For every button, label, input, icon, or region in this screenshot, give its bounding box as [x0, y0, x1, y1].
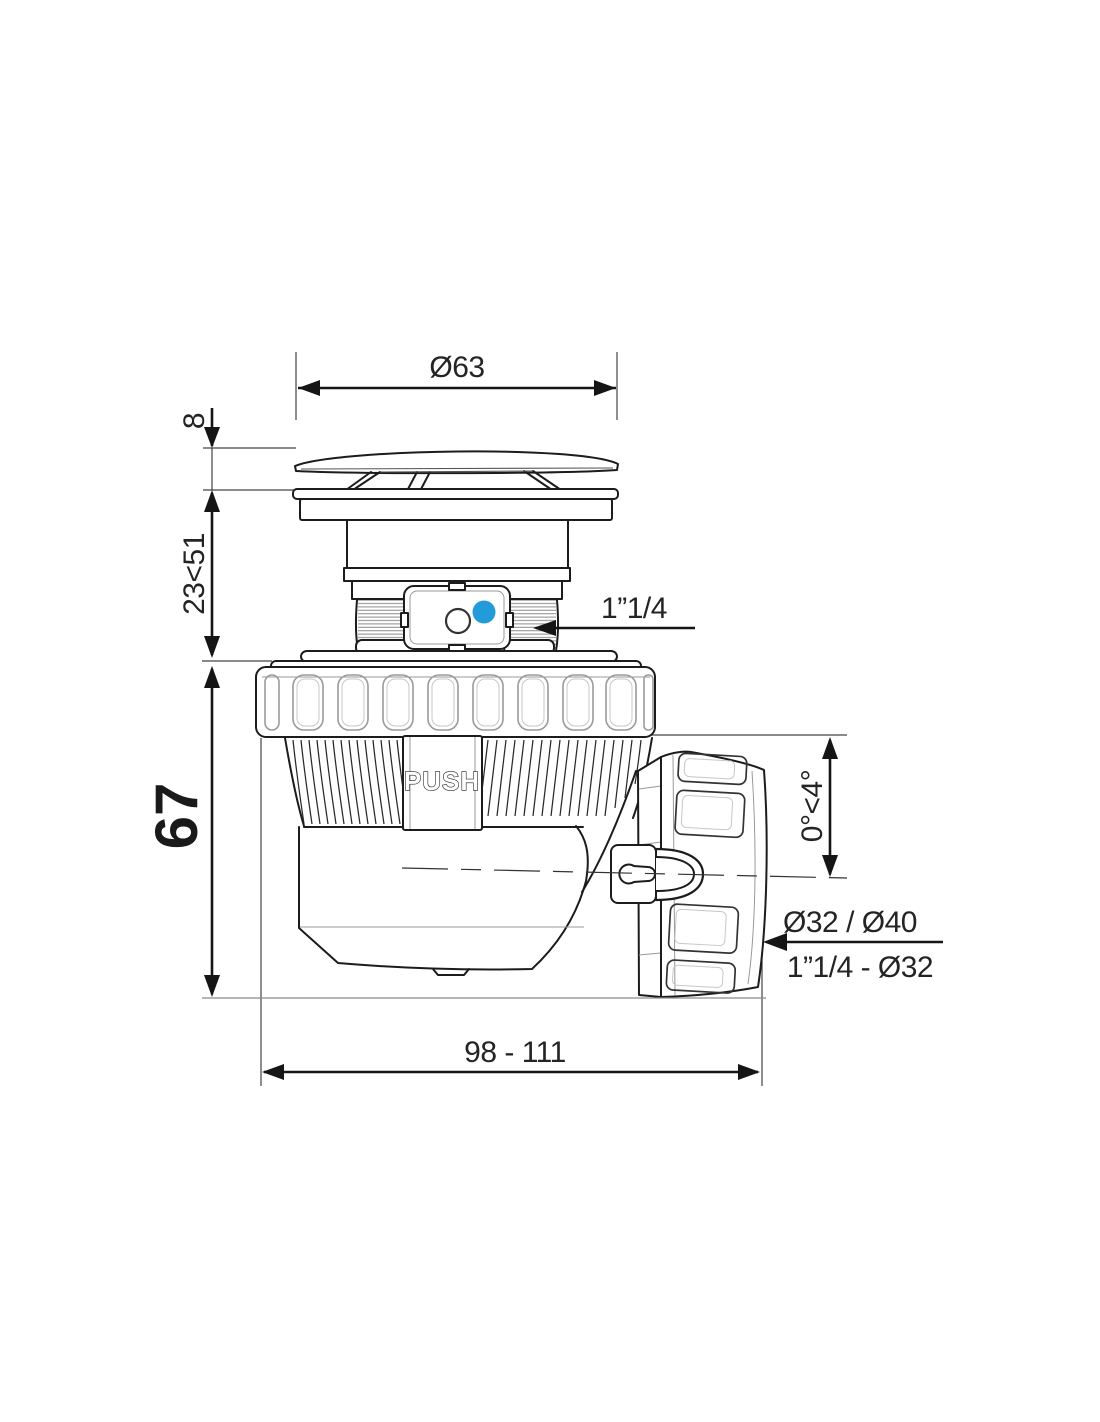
cap	[295, 451, 618, 473]
clamp-hole	[446, 609, 470, 633]
drain-trap-technical-drawing: PUSH	[0, 0, 1100, 1422]
push-tab: PUSH	[403, 736, 482, 830]
label-outlet-bottom: 1”1/4 - Ø32	[787, 951, 933, 984]
blue-indicator-dot	[473, 601, 496, 624]
dim-height-adjust	[202, 490, 272, 661]
dim-cap-lip	[203, 408, 296, 490]
label-outlet-angle: 0°<4°	[796, 770, 829, 842]
push-label: PUSH	[404, 766, 480, 796]
cone-ribs-right	[479, 740, 641, 816]
label-cap-lip: 8	[178, 413, 211, 429]
ring-nut	[256, 667, 655, 737]
label-body-height: 67	[143, 783, 210, 850]
height-clamp	[401, 583, 513, 652]
label-height-adjust: 23<51	[178, 533, 211, 615]
label-inlet-thread: 1”1/4	[601, 592, 667, 625]
cone-ribs-left	[293, 740, 408, 824]
cap-flange	[293, 489, 618, 520]
label-cap-diameter: Ø63	[429, 351, 484, 384]
label-outlet-top: Ø32 / Ø40	[783, 906, 917, 939]
technical-drawing-page: PUSH	[0, 0, 1100, 1422]
label-overall-length: 98 - 111	[464, 1036, 566, 1069]
